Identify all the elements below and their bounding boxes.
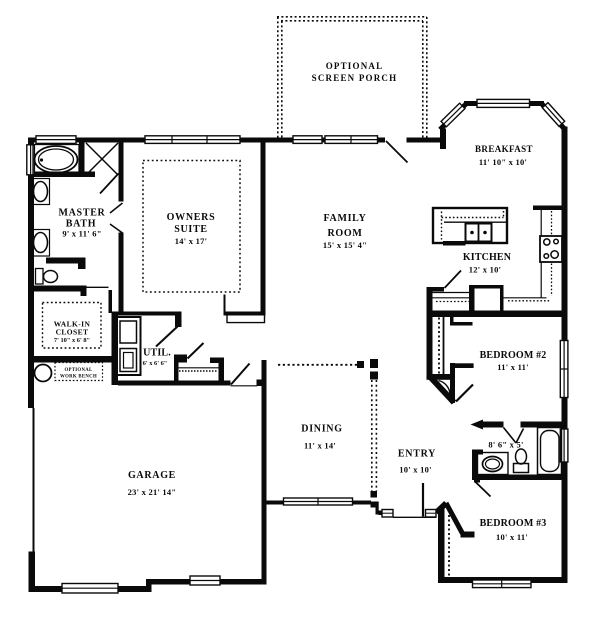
svg-text:BEDROOM #3: BEDROOM #3 [480,518,547,529]
svg-text:11' x 11': 11' x 11' [497,362,529,372]
svg-text:SCREEN PORCH: SCREEN PORCH [312,73,398,83]
svg-text:UTIL.: UTIL. [143,348,171,359]
svg-text:10' x 10': 10' x 10' [399,465,431,475]
svg-text:WORK BENCH: WORK BENCH [60,375,97,380]
svg-text:23' x 21' 14": 23' x 21' 14" [128,487,177,497]
svg-text:FAMILY: FAMILY [323,213,366,224]
svg-text:11' 10" x 10': 11' 10" x 10' [479,157,527,167]
svg-text:7' 10" x 6' 8": 7' 10" x 6' 8" [54,337,90,344]
svg-text:12' x 10': 12' x 10' [469,265,501,275]
svg-text:BREAKFAST: BREAKFAST [475,144,533,154]
svg-text:DINING: DINING [301,424,342,435]
svg-text:CLOSET: CLOSET [56,328,89,337]
svg-text:OWNERS: OWNERS [167,212,216,223]
svg-text:8' 6" x 5': 8' 6" x 5' [488,440,523,450]
svg-text:SUITE: SUITE [174,224,208,235]
svg-text:6' x 6' 6": 6' x 6' 6" [143,360,168,367]
svg-text:OPTIONAL: OPTIONAL [326,61,384,71]
svg-text:BEDROOM #2: BEDROOM #2 [480,350,547,361]
svg-text:15' x 15' 4": 15' x 15' 4" [323,240,367,250]
svg-text:KITCHEN: KITCHEN [463,252,512,263]
svg-text:14' x 17': 14' x 17' [175,236,207,246]
svg-text:9' x 11' 6": 9' x 11' 6" [62,229,101,239]
svg-text:MASTER: MASTER [59,208,106,219]
svg-text:10' x 11': 10' x 11' [496,532,528,542]
svg-text:OPTIONAL: OPTIONAL [65,368,93,373]
svg-text:ENTRY: ENTRY [398,449,436,460]
svg-text:GARAGE: GARAGE [128,470,176,481]
svg-text:ROOM: ROOM [327,228,362,239]
svg-text:11' x 14': 11' x 14' [304,441,336,451]
